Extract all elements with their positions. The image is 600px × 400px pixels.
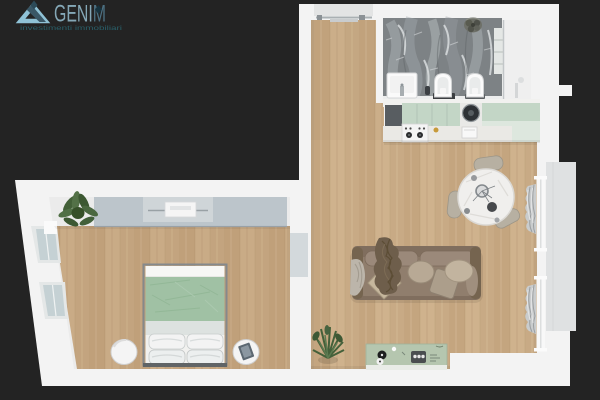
- svg-text:GENIM: GENIM: [54, 1, 106, 28]
- svg-text:investimenti immobiliari: investimenti immobiliari: [20, 25, 122, 32]
